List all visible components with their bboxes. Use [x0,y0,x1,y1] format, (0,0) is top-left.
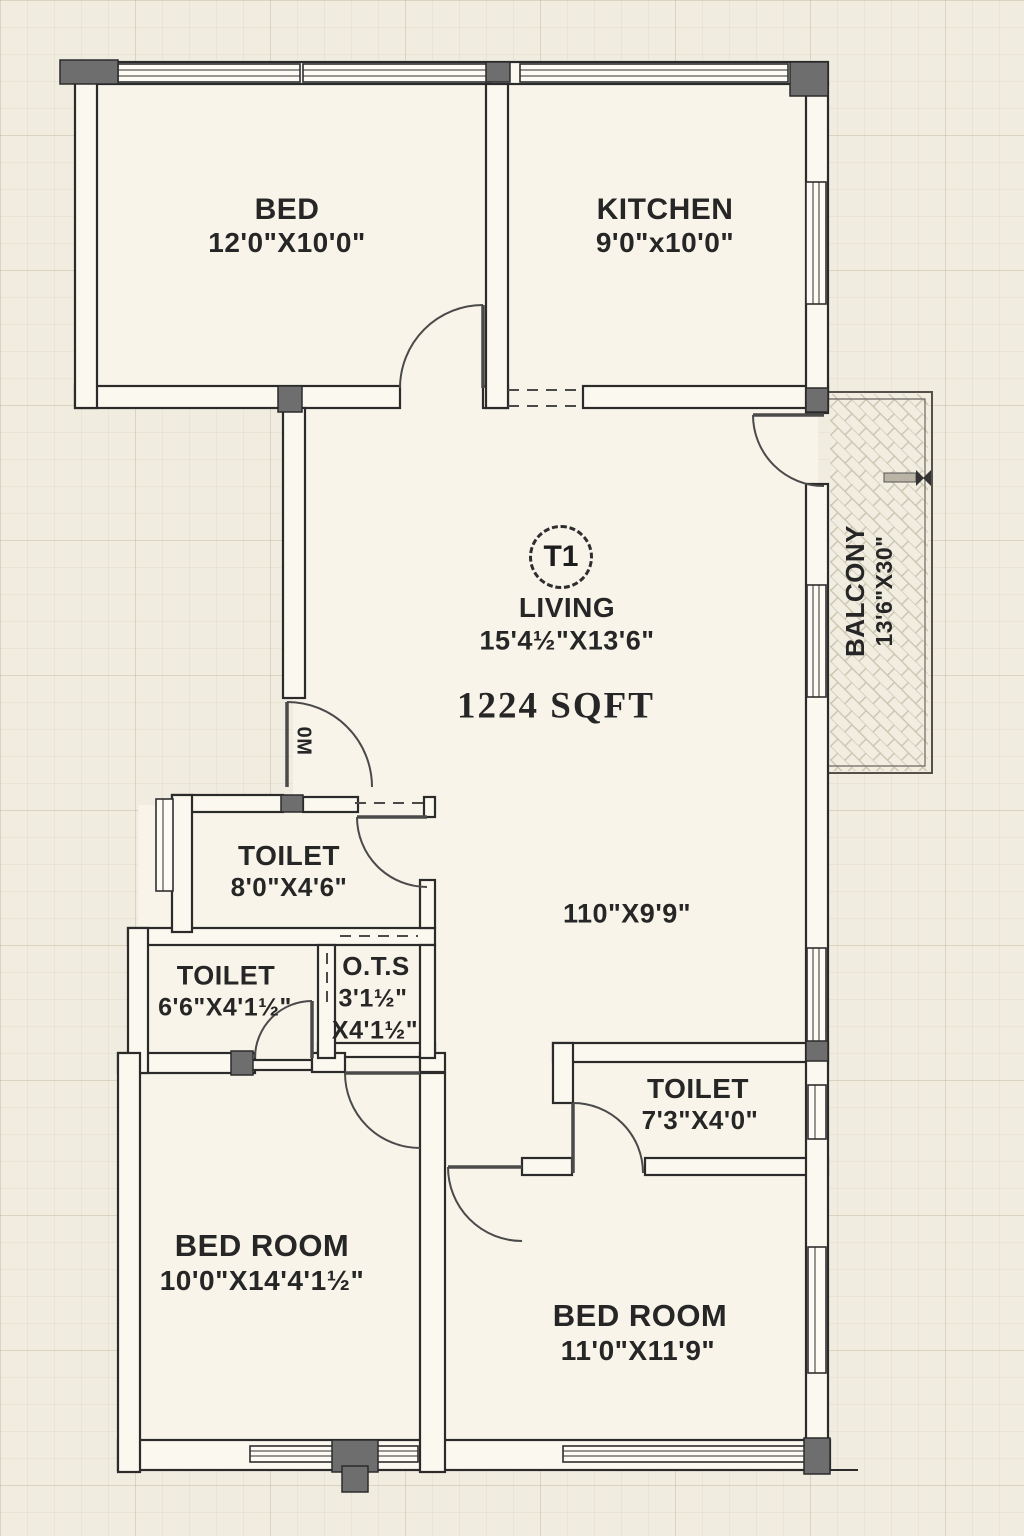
living-extra-dim: 110"X9'9" [563,898,691,929]
room-label-kitchen: KITCHEN [597,193,734,228]
window [807,585,826,697]
door-label-0m: 0M [292,727,315,756]
floor-plan-drawing [0,0,1024,1536]
room-dims-ots-2: X4'1½" [332,1017,418,1046]
room-label-bed: BED [255,193,320,228]
room-dims-bed: 12'0"X10'0" [208,227,365,259]
room-dims-toilet-left: 6'6"X4'1½" [158,994,292,1023]
room-label-bedroom-left: BED ROOM [175,1228,350,1264]
column [806,1041,828,1061]
window [303,64,490,82]
unit-badge: T1 [529,525,593,589]
room-label-balcony: BALCONY 13'6"X30" [841,525,897,657]
column [278,386,302,412]
room-label-ots: O.T.S [342,952,410,982]
column [806,388,828,412]
room-dims-toilet-right: 7'3"X4'0" [642,1106,759,1136]
window [807,948,826,1045]
room-dims-toilet-top: 8'0"X4'6" [231,873,348,903]
room-label-toilet-left: TOILET [177,960,276,991]
room-label-bedroom-right: BED ROOM [553,1298,728,1334]
column [486,62,510,82]
column [231,1051,253,1075]
column [804,1438,830,1474]
balcony-dims: 13'6"X30" [871,525,897,657]
room-dims-ots-1: 3'1½" [339,985,408,1014]
room-label-toilet-right: TOILET [647,1073,749,1105]
window [563,1446,806,1462]
room-label-toilet-top: TOILET [238,840,340,872]
column [790,62,828,96]
unit-area-label: 1224 SQFT [457,686,655,729]
room-label-living: LIVING [519,592,615,624]
window [520,64,788,82]
column [342,1466,368,1492]
window [808,1247,826,1373]
column [281,795,303,812]
floor-plan: T1 BED 12'0"X10'0" KITCHEN 9'0"x10'0" LI… [0,0,1024,1536]
window [156,799,173,891]
window [118,64,300,82]
window [808,1085,826,1139]
balcony-name: BALCONY [841,525,871,657]
window [806,182,826,304]
room-dims-bedroom-left: 10'0"X14'4'1½" [160,1265,365,1297]
room-dims-bedroom-right: 11'0"X11'9" [561,1335,715,1367]
room-dims-living: 15'4½"X13'6" [479,625,654,656]
column [60,60,118,84]
room-dims-kitchen: 9'0"x10'0" [596,227,734,259]
